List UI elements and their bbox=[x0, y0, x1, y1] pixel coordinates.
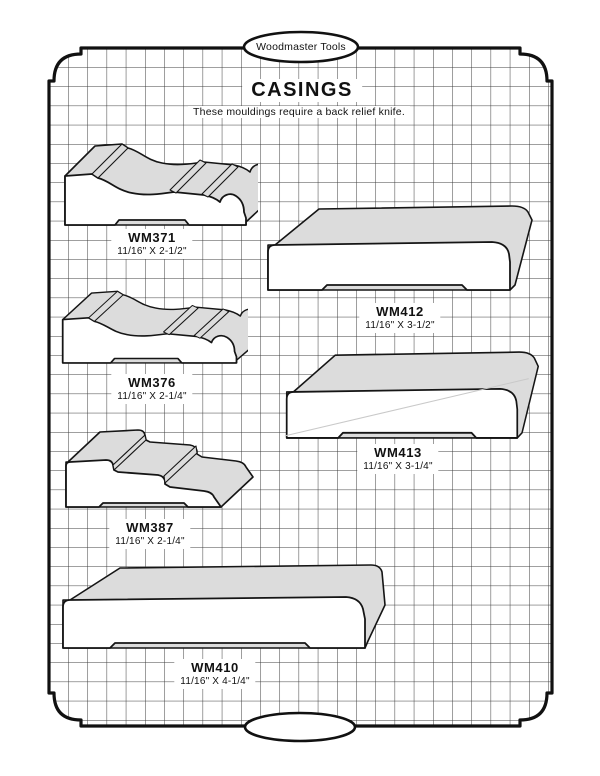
wm410-front-face bbox=[63, 597, 365, 648]
wm413-profile bbox=[287, 352, 539, 438]
product-code: WM376 bbox=[117, 375, 186, 390]
product-size: 11/16" X 2-1/4" bbox=[115, 536, 184, 547]
product-code: WM412 bbox=[365, 304, 434, 319]
moulding-drawing-wm376 bbox=[56, 286, 248, 370]
stepped-casing-profile bbox=[66, 430, 253, 507]
wide-ranch-casing-profile bbox=[63, 565, 385, 648]
moulding-drawing-wm387 bbox=[56, 424, 256, 514]
moulding-drawing-wm410 bbox=[58, 563, 390, 655]
product-code: WM413 bbox=[363, 445, 432, 460]
moulding-drawing-wm412 bbox=[262, 202, 537, 294]
product-label-wm410: WM410 11/16" X 4-1/4" bbox=[174, 659, 255, 689]
product-size: 11/16" X 4-1/4" bbox=[180, 676, 249, 687]
ogee-casing-profile bbox=[65, 144, 258, 225]
product-label-wm413: WM413 11/16" X 3-1/4" bbox=[357, 444, 438, 474]
page-title: CASINGS bbox=[242, 79, 362, 102]
product-size: 11/16" X 3-1/4" bbox=[363, 461, 432, 472]
page-note: These mouldings require a back relief kn… bbox=[188, 106, 410, 118]
moulding-drawing-wm413 bbox=[281, 348, 543, 442]
product-label-wm376: WM376 11/16" X 2-1/4" bbox=[111, 374, 192, 404]
product-size: 11/16" X 2-1/4" bbox=[117, 391, 186, 402]
moulding-drawing-wm371 bbox=[58, 138, 258, 233]
product-label-wm412: WM412 11/16" X 3-1/2" bbox=[359, 303, 440, 333]
wm376-profile bbox=[63, 291, 248, 363]
wm412-front-face bbox=[268, 242, 510, 290]
catalog-page: Woodmaster Tools CASINGS These mouldings… bbox=[0, 0, 600, 776]
product-size: 11/16" X 3-1/2" bbox=[365, 320, 434, 331]
product-size: 11/16" X 2-1/2" bbox=[117, 246, 186, 257]
footer-oval-badge bbox=[245, 713, 355, 741]
product-code: WM410 bbox=[180, 660, 249, 675]
brand-label: Woodmaster Tools bbox=[256, 41, 346, 53]
product-code: WM387 bbox=[115, 520, 184, 535]
product-label-wm371: WM371 11/16" X 2-1/2" bbox=[111, 229, 192, 259]
product-code: WM371 bbox=[117, 230, 186, 245]
product-label-wm387: WM387 11/16" X 2-1/4" bbox=[109, 519, 190, 549]
ranch-casing-profile bbox=[268, 206, 532, 290]
